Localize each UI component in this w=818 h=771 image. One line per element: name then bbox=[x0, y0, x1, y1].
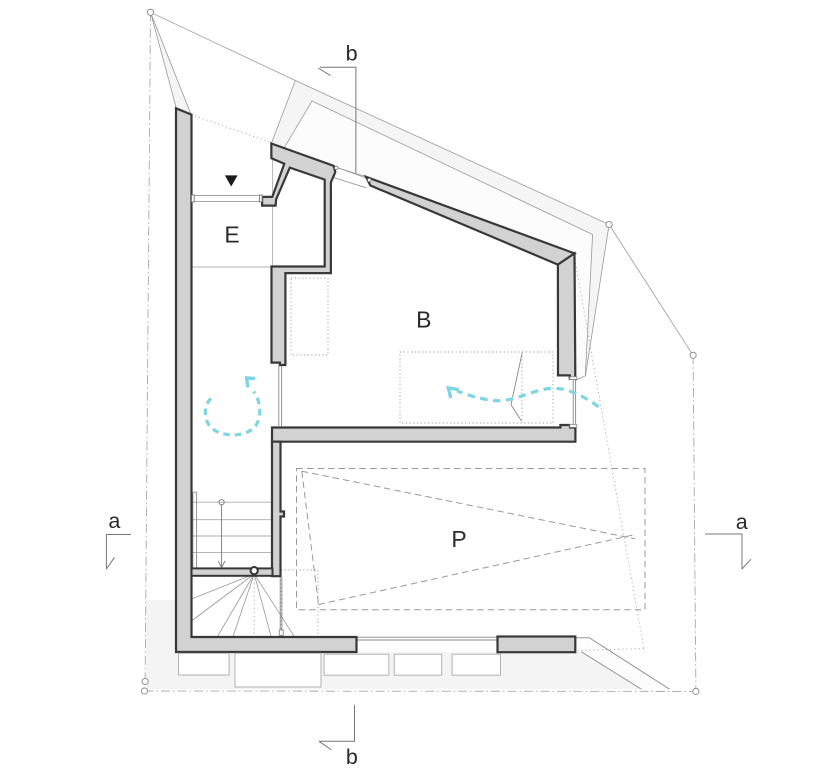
svg-text:b: b bbox=[346, 42, 358, 66]
svg-text:a: a bbox=[108, 509, 120, 533]
svg-text:a: a bbox=[736, 510, 748, 534]
svg-text:b: b bbox=[346, 745, 358, 769]
svg-text:E: E bbox=[224, 222, 239, 248]
svg-text:B: B bbox=[416, 307, 431, 333]
svg-text:P: P bbox=[451, 526, 466, 552]
